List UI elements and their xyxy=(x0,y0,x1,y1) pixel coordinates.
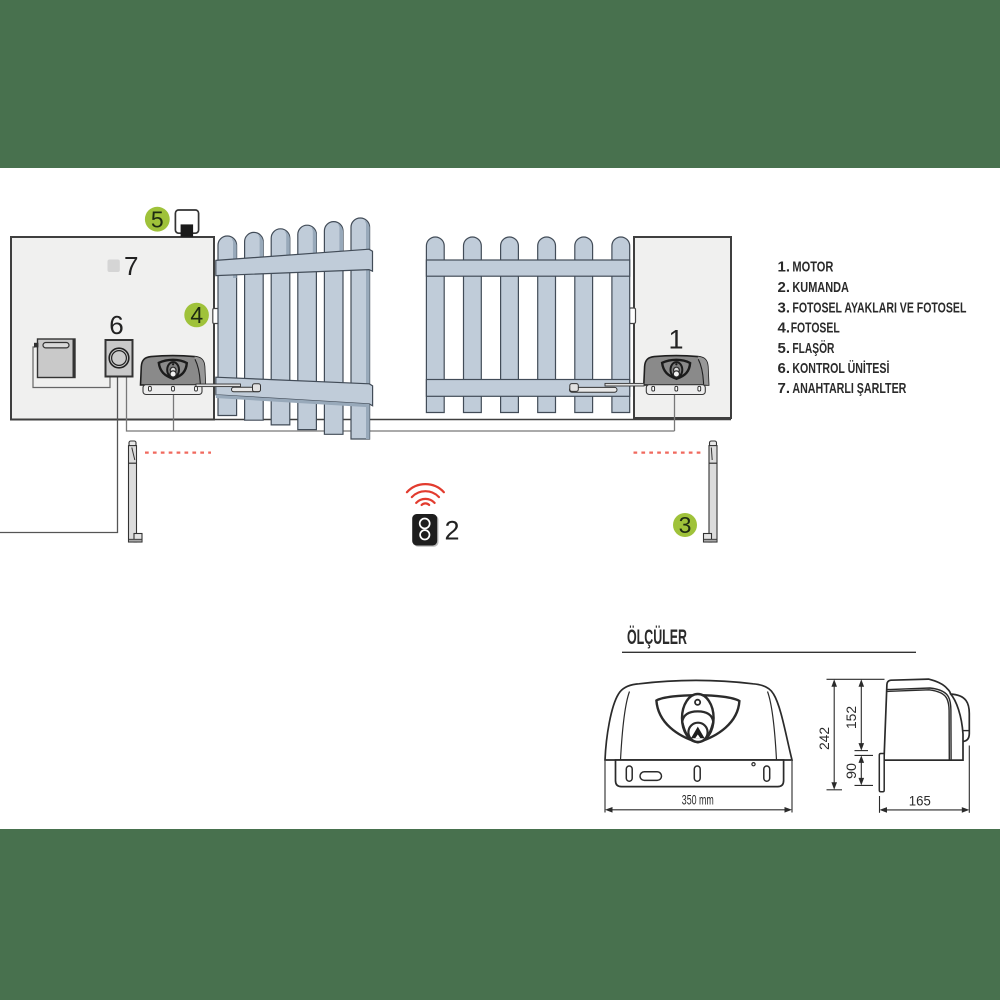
svg-text:1: 1 xyxy=(668,325,683,355)
svg-text:152: 152 xyxy=(843,706,859,729)
svg-text:ANAHTARLI ŞARLTER: ANAHTARLI ŞARLTER xyxy=(792,380,906,397)
svg-text:242: 242 xyxy=(816,727,832,750)
svg-text:5.: 5. xyxy=(778,340,791,357)
svg-text:FLAŞÖR: FLAŞÖR xyxy=(792,340,834,357)
svg-text:3.: 3. xyxy=(778,299,791,316)
svg-text:165: 165 xyxy=(909,793,931,809)
svg-text:6: 6 xyxy=(109,310,123,340)
svg-text:3: 3 xyxy=(679,512,692,538)
svg-text:6.: 6. xyxy=(778,360,791,377)
svg-text:MOTOR: MOTOR xyxy=(792,259,833,276)
svg-text:ÖLÇÜLER: ÖLÇÜLER xyxy=(627,626,687,649)
svg-text:2: 2 xyxy=(444,516,459,546)
svg-text:7: 7 xyxy=(124,251,138,281)
svg-text:4: 4 xyxy=(190,302,203,328)
svg-text:7.: 7. xyxy=(778,380,791,397)
svg-text:5: 5 xyxy=(151,206,164,232)
svg-text:KUMANDA: KUMANDA xyxy=(792,279,849,296)
svg-text:4.: 4. xyxy=(778,320,791,337)
svg-text:KONTROL ÜNİTESİ: KONTROL ÜNİTESİ xyxy=(792,360,889,377)
svg-text:FOTOSEL: FOTOSEL xyxy=(791,320,840,337)
svg-text:350 mm: 350 mm xyxy=(682,792,714,808)
svg-text:1.: 1. xyxy=(778,259,791,276)
svg-text:90: 90 xyxy=(843,763,859,779)
svg-text:2.: 2. xyxy=(778,279,791,296)
svg-text:FOTOSEL AYAKLARI VE FOTOSEL: FOTOSEL AYAKLARI VE FOTOSEL xyxy=(792,299,966,316)
